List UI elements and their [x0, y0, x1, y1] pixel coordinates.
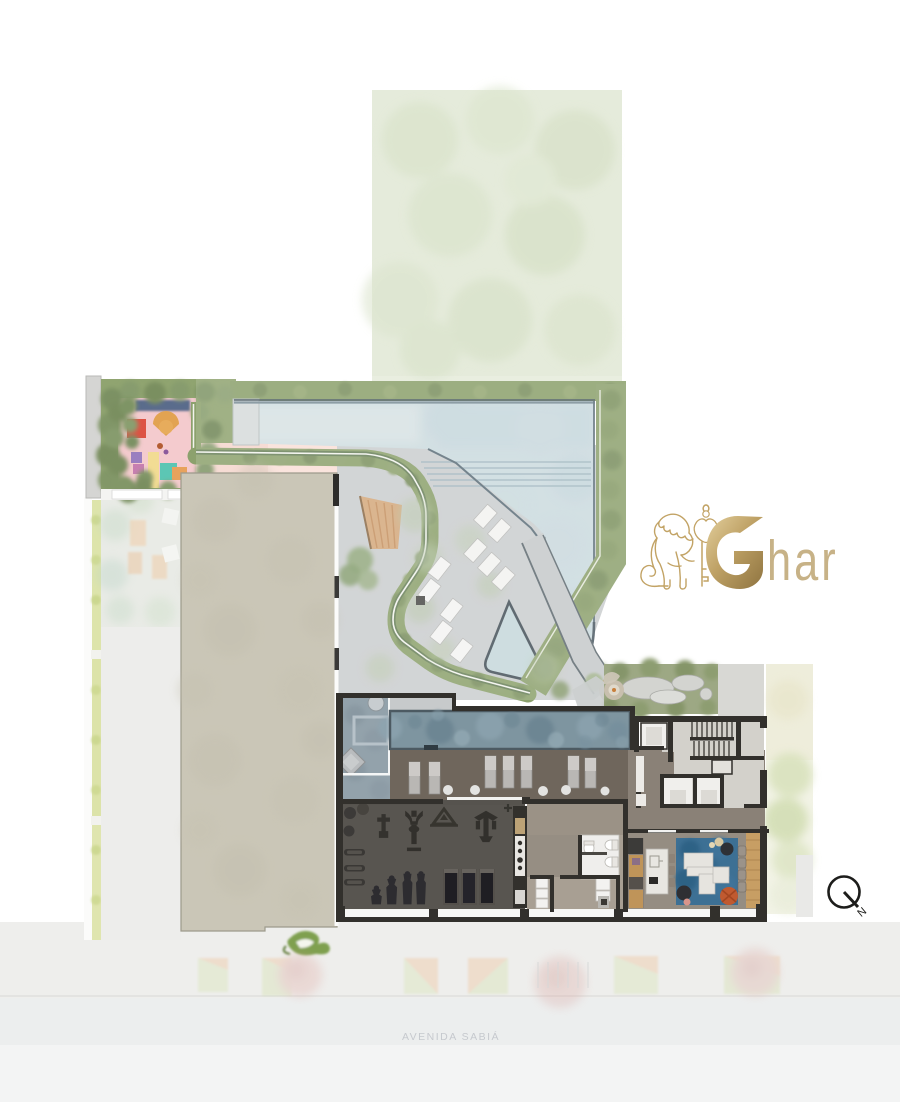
svg-text:har: har	[767, 528, 839, 592]
svg-text:AVENIDA SABIÁ: AVENIDA SABIÁ	[402, 1030, 500, 1043]
